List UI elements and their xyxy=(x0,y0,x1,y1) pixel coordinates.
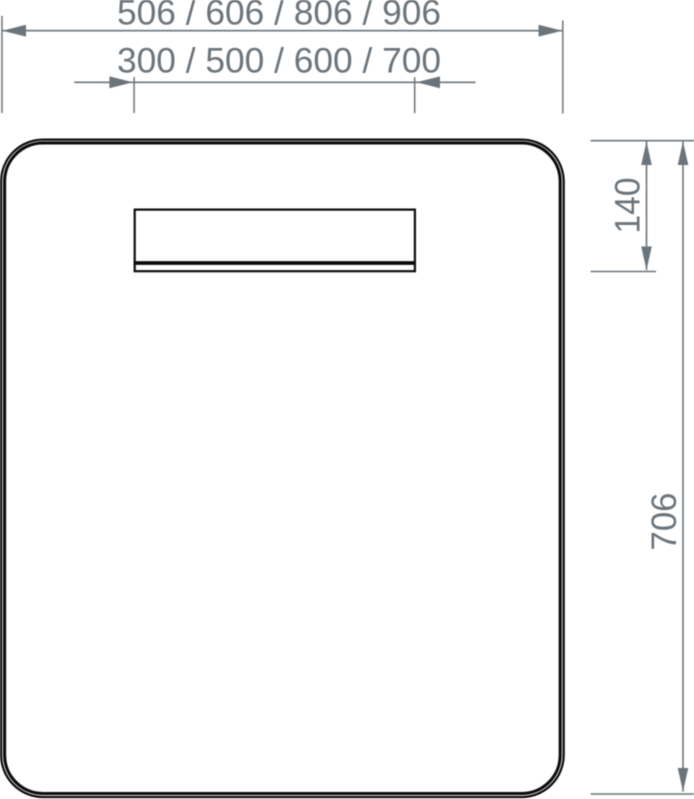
svg-text:706: 706 xyxy=(645,493,684,551)
svg-text:506 / 606 / 806 / 906: 506 / 606 / 806 / 906 xyxy=(117,0,441,33)
svg-text:300 / 500 / 600 / 700: 300 / 500 / 600 / 700 xyxy=(117,42,441,81)
svg-text:140: 140 xyxy=(609,178,648,234)
